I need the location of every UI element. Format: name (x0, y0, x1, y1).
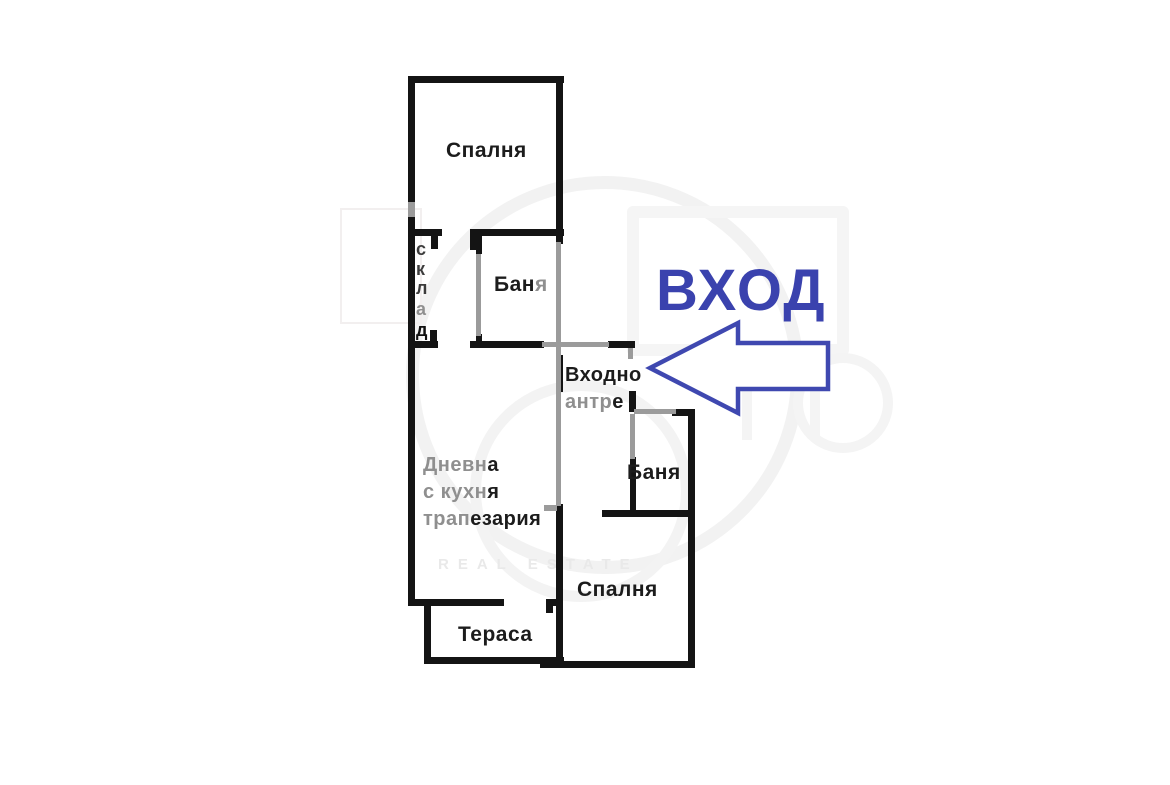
watermark-text: REAL ESTATE (438, 556, 639, 573)
room-label-text: Спалня (577, 578, 658, 601)
room-label-text: я (487, 481, 499, 503)
room-label-entry-hall: Входно антре (565, 362, 642, 416)
partition-segment (544, 505, 557, 511)
wall-segment (408, 238, 415, 606)
wall-segment (476, 236, 482, 254)
room-label-text: Входно (565, 364, 642, 386)
room-label-bedroom-top: Спалня (446, 139, 527, 163)
room-label-text: Дневн (423, 454, 487, 476)
floor-plan: REAL ESTATE Спалня Баня с к л а д ВХОД (0, 0, 1170, 785)
room-label-text: трап (423, 508, 470, 530)
room-label-bath-right: Баня (627, 461, 681, 485)
room-label-text: а (487, 454, 499, 476)
door-jamb (546, 599, 553, 613)
partition-segment (628, 348, 633, 359)
room-label-storage-letter: д (416, 321, 427, 339)
wall-segment (470, 229, 564, 236)
wall-segment (556, 76, 563, 244)
entrance-arrow-icon (641, 315, 837, 421)
room-label-text: Бан (494, 273, 535, 296)
room-label-text: антр (565, 391, 612, 413)
partition-segment (476, 254, 481, 336)
room-label-storage-letter: а (416, 300, 426, 318)
room-label-text: с кухн (423, 481, 487, 503)
room-label-terrace: Тераса (458, 623, 533, 647)
room-label-text: езария (470, 508, 541, 530)
wall-segment (688, 409, 695, 668)
room-label-text: я (535, 273, 548, 296)
wall-segment (540, 661, 695, 668)
room-label-text: е (612, 391, 624, 413)
wall-segment (424, 599, 431, 664)
partition-segment (630, 414, 635, 459)
partition-segment (556, 242, 561, 506)
partition-segment (408, 202, 415, 217)
room-label-storage-letter: к (416, 260, 425, 278)
wall-segment (608, 341, 635, 348)
wall-segment (602, 510, 694, 517)
room-label-text: Спалня (446, 139, 527, 162)
room-label-storage-letter: с (416, 240, 426, 258)
room-label-living: Дневна с кухня трапезария (423, 452, 541, 533)
room-label-text: Баня (627, 461, 681, 484)
room-label-text: Тераса (458, 623, 533, 646)
wall-segment (408, 76, 564, 83)
room-label-bedroom-bottom: Спалня (577, 578, 658, 602)
door-jamb (430, 330, 437, 348)
entrance-sign: ВХОД (656, 262, 827, 320)
wall-segment (470, 341, 544, 348)
door-jamb (431, 234, 438, 249)
wall-segment (408, 599, 504, 606)
partition-segment (542, 342, 609, 347)
room-label-storage-letter: л (416, 279, 427, 297)
wall-segment (556, 504, 563, 668)
room-label-bath-top: Баня (494, 273, 548, 297)
